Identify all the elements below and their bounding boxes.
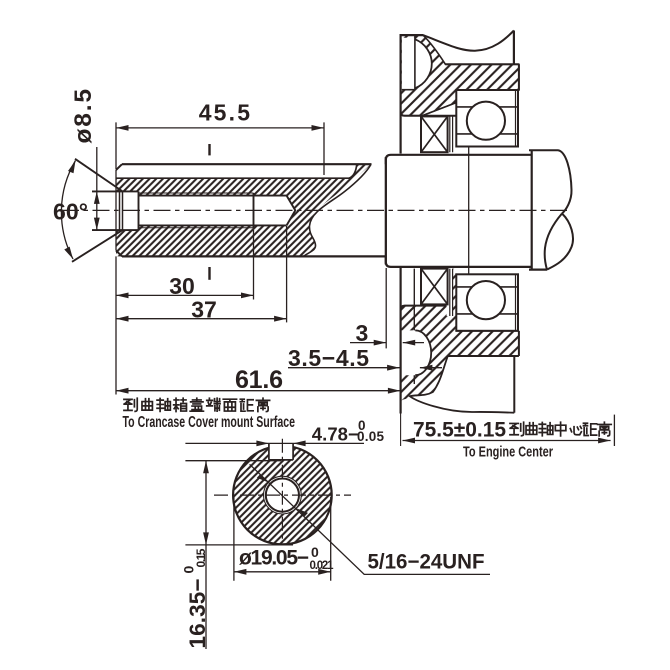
- svg-text:30: 30: [169, 273, 195, 299]
- svg-text:ø8.5: ø8.5: [70, 89, 97, 144]
- svg-text:0.021: 0.021: [310, 560, 335, 572]
- svg-text:0.05: 0.05: [357, 429, 384, 444]
- svg-text:75.5±0.15: 75.5±0.15: [413, 419, 506, 442]
- svg-text:5/16−24UNF: 5/16−24UNF: [368, 551, 485, 574]
- svg-text:4.78−: 4.78−: [312, 424, 359, 445]
- svg-text:45.5: 45.5: [199, 100, 251, 126]
- svg-text:3: 3: [356, 320, 369, 346]
- svg-text:60°: 60°: [53, 199, 88, 225]
- svg-text:16.35−: 16.35−: [185, 579, 210, 649]
- svg-text:To Engine Center: To Engine Center: [463, 444, 553, 461]
- svg-text:To Crancase Cover mount Surfac: To Crancase Cover mount Surface: [123, 414, 296, 431]
- svg-text:0.15: 0.15: [194, 548, 208, 567]
- svg-text:37: 37: [191, 296, 217, 322]
- svg-text:3.5−4.5: 3.5−4.5: [288, 345, 369, 371]
- svg-text:0: 0: [311, 544, 319, 560]
- svg-text:61.6: 61.6: [235, 366, 283, 394]
- svg-text:ø19.05−: ø19.05−: [239, 547, 309, 570]
